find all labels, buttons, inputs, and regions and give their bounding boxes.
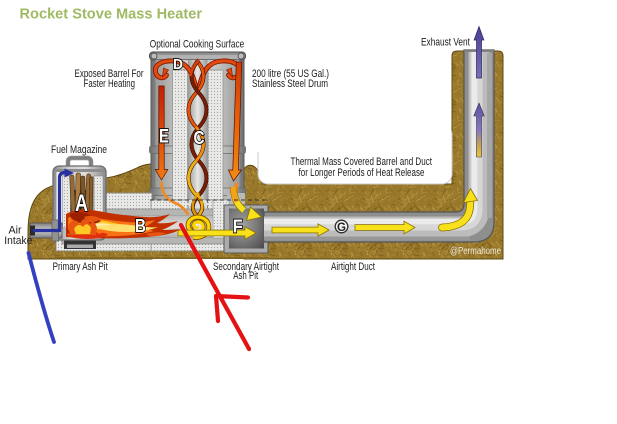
svg-text:Faster Heating: Faster Heating xyxy=(84,78,136,90)
svg-text:F: F xyxy=(233,216,243,236)
svg-text:G: G xyxy=(337,222,346,234)
svg-text:Ash Pit: Ash Pit xyxy=(233,270,258,282)
svg-text:Fuel Magazine: Fuel Magazine xyxy=(51,144,107,156)
svg-text:for Longer Periods of Heat Rel: for Longer Periods of Heat Release xyxy=(299,167,425,179)
svg-text:B: B xyxy=(135,216,146,236)
svg-text:A: A xyxy=(75,190,88,217)
svg-text:Rocket Stove Mass Heater: Rocket Stove Mass Heater xyxy=(20,7,203,23)
svg-text:Stainless Steel Drum: Stainless Steel Drum xyxy=(252,78,328,90)
svg-text:E: E xyxy=(159,126,169,148)
svg-text:Intake: Intake xyxy=(4,235,32,247)
svg-text:Airtight Duct: Airtight Duct xyxy=(331,261,375,273)
svg-text:Optional Cooking Surface: Optional Cooking Surface xyxy=(150,39,245,51)
svg-text:@Permahome: @Permahome xyxy=(450,246,501,257)
svg-text:C: C xyxy=(194,128,205,148)
svg-text:D: D xyxy=(173,56,183,73)
svg-text:Exhaust Vent: Exhaust Vent xyxy=(421,37,470,49)
svg-text:Primary Ash Pit: Primary Ash Pit xyxy=(53,261,108,273)
